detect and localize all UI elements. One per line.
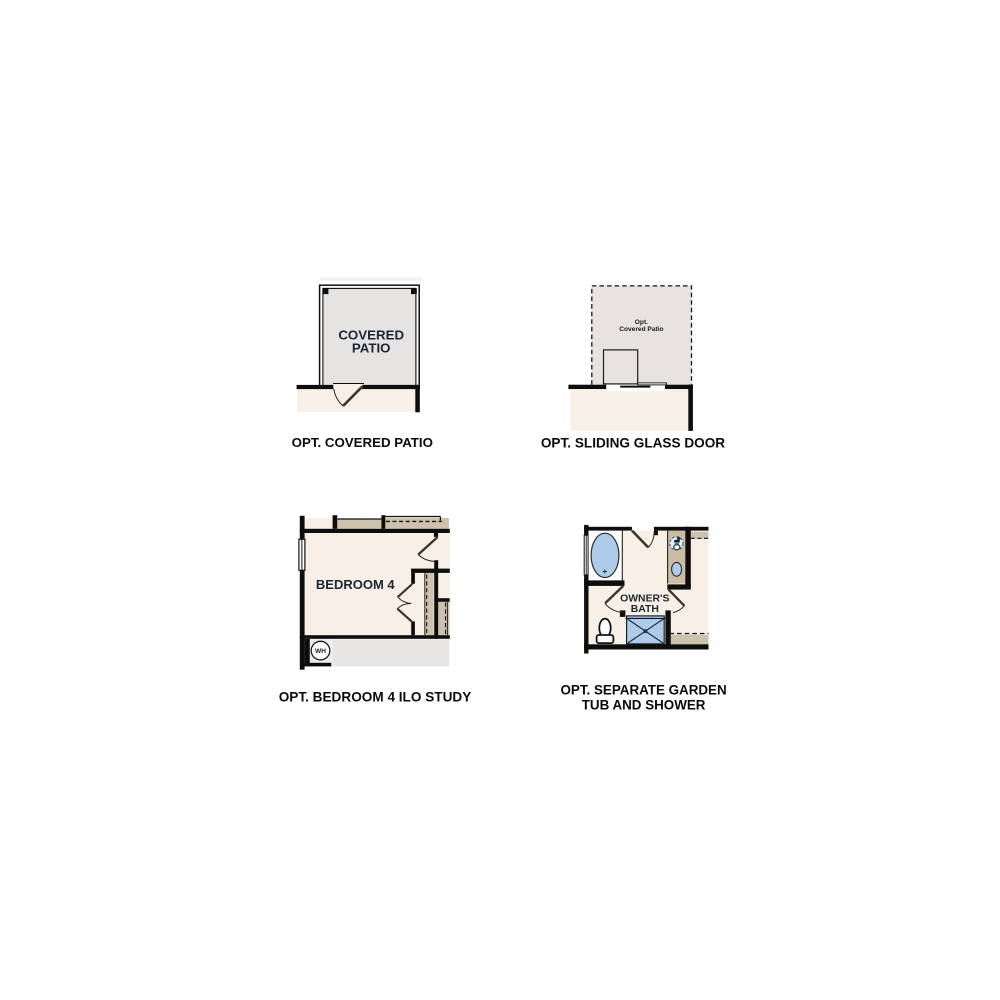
svg-text:WH: WH xyxy=(315,648,326,655)
svg-text:TUB AND SHOWER: TUB AND SHOWER xyxy=(582,697,706,712)
svg-text:OPT. SEPARATE GARDEN: OPT. SEPARATE GARDEN xyxy=(561,682,727,697)
svg-text:OPT. SLIDING GLASS DOOR: OPT. SLIDING GLASS DOOR xyxy=(541,436,725,451)
svg-text:BATH: BATH xyxy=(631,604,659,615)
svg-text:OPT. COVERED PATIO: OPT. COVERED PATIO xyxy=(292,435,433,450)
svg-text:BEDROOM 4: BEDROOM 4 xyxy=(316,577,396,592)
svg-text:PATIO: PATIO xyxy=(352,340,391,355)
svg-text:Opt.: Opt. xyxy=(635,319,648,326)
svg-text:OPT. BEDROOM 4 ILO STUDY: OPT. BEDROOM 4 ILO STUDY xyxy=(279,689,472,704)
svg-text:Covered Patio: Covered Patio xyxy=(619,326,663,333)
